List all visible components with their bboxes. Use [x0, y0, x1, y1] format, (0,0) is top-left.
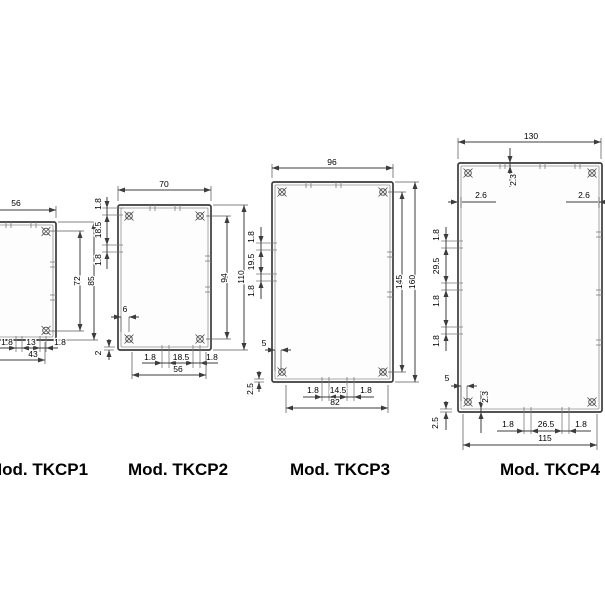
dim-label-post-offset: 5 — [262, 338, 267, 348]
model-label-tkcp2: Mod. TKCP2 — [128, 460, 228, 479]
dim-label-wall: 2.5 — [430, 417, 440, 429]
screw-post-icon — [125, 212, 134, 221]
screw-post-icon — [42, 227, 51, 236]
drawing-tkcp4: 130 2.3 2.6 2.6 — [430, 131, 605, 479]
dim-label-height-outer: 160 — [407, 275, 417, 289]
drawing-tkcp1: 56 72 85 1.8 13 1.8 — [0, 198, 98, 479]
dim-wall: 2.5 — [430, 401, 452, 430]
screw-post-icon — [379, 368, 388, 377]
dim-label-bottom-center: 14.5 — [330, 385, 347, 395]
screw-post-icon — [196, 212, 205, 221]
dim-label-side-3: 1.8 — [431, 295, 441, 307]
screw-post-icon — [588, 398, 597, 407]
dim-label-width: 70 — [159, 179, 169, 189]
dim-label-height-inner: 94 — [219, 273, 229, 283]
technical-drawing-sheet: 56 72 85 1.8 13 1.8 — [0, 0, 605, 605]
dim-label-bottom-right: 1.8 — [54, 337, 66, 347]
dim-label-post-offset: 5 — [445, 373, 450, 383]
model-label-tkcp4: Mod. TKCP4 — [500, 460, 601, 479]
drawing-tkcp3: 96 1.8 19.5 1.8 145 160 — [245, 157, 419, 479]
screw-post-icon — [278, 188, 287, 197]
dim-label-bottom-span: 56 — [173, 364, 183, 374]
dim-label-side-mid: 18.5 — [93, 221, 103, 238]
dim-label-side-bottom: 1.8 — [93, 254, 103, 266]
dim-label-top-wall: 2.3 — [508, 174, 518, 186]
dim-width: 70 — [118, 179, 211, 201]
dim-label-bottom-left: 1.8 — [307, 385, 319, 395]
dim-label-bottom-left: 1.8 — [502, 419, 514, 429]
screw-post-icon — [278, 368, 287, 377]
dim-label-bottom-wall: 2.3 — [480, 391, 490, 403]
enclosure-outline — [272, 182, 393, 382]
screw-post-icon — [588, 169, 597, 178]
enclosure-outline — [118, 205, 211, 350]
dim-label-bottom-right: 1.8 — [360, 385, 372, 395]
dim-label-bottom-span: 82 — [330, 397, 340, 407]
dim-label-bottom-right: 1.8 — [575, 419, 587, 429]
model-label-tkcp3: Mod. TKCP3 — [290, 460, 390, 479]
dim-label-wall: 2.5 — [245, 383, 255, 395]
dim-label-width: 56 — [11, 198, 21, 208]
drawing-svg: 56 72 85 1.8 13 1.8 — [0, 0, 605, 605]
dim-label-bottom-center: 18.5 — [173, 352, 190, 362]
dim-width: 96 — [272, 157, 393, 178]
dim-label-side-4: 1.8 — [431, 335, 441, 347]
screw-post-icon — [42, 326, 51, 335]
enclosure-outline — [0, 222, 56, 340]
dim-label-bottom-left: 1.8 — [1, 337, 13, 347]
dim-label-height-outer: 85 — [86, 276, 96, 286]
dim-label-width: 130 — [524, 131, 538, 141]
dim-label-side-2: 29.5 — [431, 257, 441, 274]
model-label-tkcp1: Mod. TKCP1 — [0, 460, 88, 479]
dim-label-side-bottom: 1.8 — [246, 285, 256, 297]
dim-label-width: 96 — [327, 157, 337, 167]
dim-label-height-inner: 72 — [72, 276, 82, 286]
screw-post-icon — [464, 169, 473, 178]
screw-post-icon — [464, 398, 473, 407]
dim-label-corner-left: 2.6 — [475, 190, 487, 200]
dim-width: 56 — [0, 198, 56, 218]
dim-label-bottom-span: 43 — [28, 349, 38, 359]
dim-label-height-outer: 110 — [236, 270, 246, 284]
screw-post-icon — [196, 335, 205, 344]
dim-label-bottom-right: 1.8 — [206, 352, 218, 362]
dim-label-corner-right: 2.6 — [578, 190, 590, 200]
dim-label-wall: 2 — [93, 350, 103, 355]
dim-width: 130 — [458, 131, 601, 159]
dim-wall: 2.5 — [245, 371, 264, 395]
dim-label-bottom-left: 1.8 — [144, 352, 156, 362]
dim-label-side-1: 1.8 — [431, 229, 441, 241]
dim-label-bottom-span: 115 — [538, 433, 552, 443]
dim-label-height-inner: 145 — [394, 275, 404, 289]
dim-label-post-offset: 6 — [123, 304, 128, 314]
screw-post-icon — [379, 188, 388, 197]
drawing-tkcp2: 70 1.8 18.5 1.8 94 110 — [93, 179, 248, 479]
dim-label-side-top: 1.8 — [93, 198, 103, 210]
dim-label-bottom-center: 26.5 — [538, 419, 555, 429]
enclosure-outline — [458, 163, 602, 412]
screw-post-icon — [125, 335, 134, 344]
dim-label-side-top: 1.8 — [246, 231, 256, 243]
dim-label-side-mid: 19.5 — [246, 253, 256, 270]
dim-label-bottom-center: 13 — [26, 337, 36, 347]
dim-wall: 2 — [93, 339, 115, 360]
